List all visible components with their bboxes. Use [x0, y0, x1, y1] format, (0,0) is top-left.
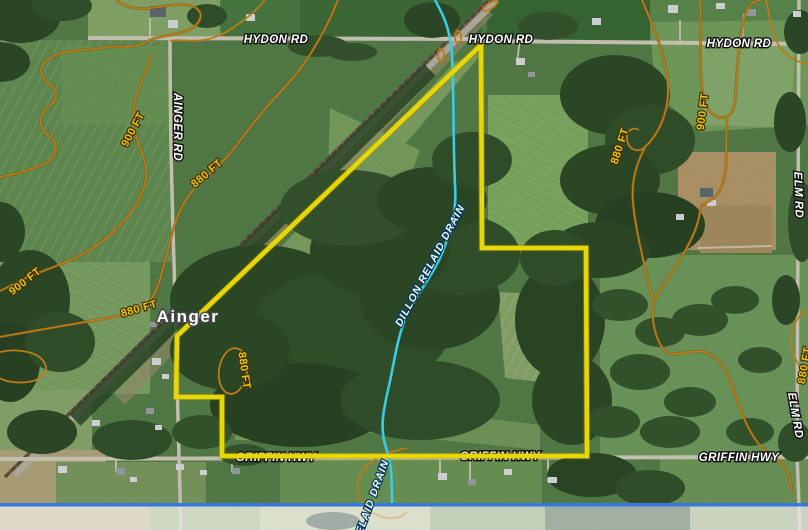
road-label-hydon-rd: HYDON RD [707, 38, 772, 50]
road-label-hydon-rd: HYDON RD [469, 34, 534, 46]
map-canvas[interactable]: 900 FT 900 FT 900 FT 880 FT 880 FT 880 F… [0, 0, 808, 530]
map-screenshot: 900 FT 900 FT 900 FT 880 FT 880 FT 880 F… [0, 0, 808, 530]
road-label-ainger-rd: AINGER RD [171, 92, 183, 161]
bottom-divider-line [0, 503, 808, 507]
road-label-hydon-rd: HYDON RD [244, 34, 309, 46]
imagery-grain [0, 0, 808, 530]
bottom-overlay [0, 506, 808, 530]
road-label-griffin-hwy: GRIFFIN HWY [699, 452, 780, 464]
road-label-elm-rd: ELM RD [791, 171, 805, 218]
town-label-ainger: Ainger [157, 307, 220, 326]
